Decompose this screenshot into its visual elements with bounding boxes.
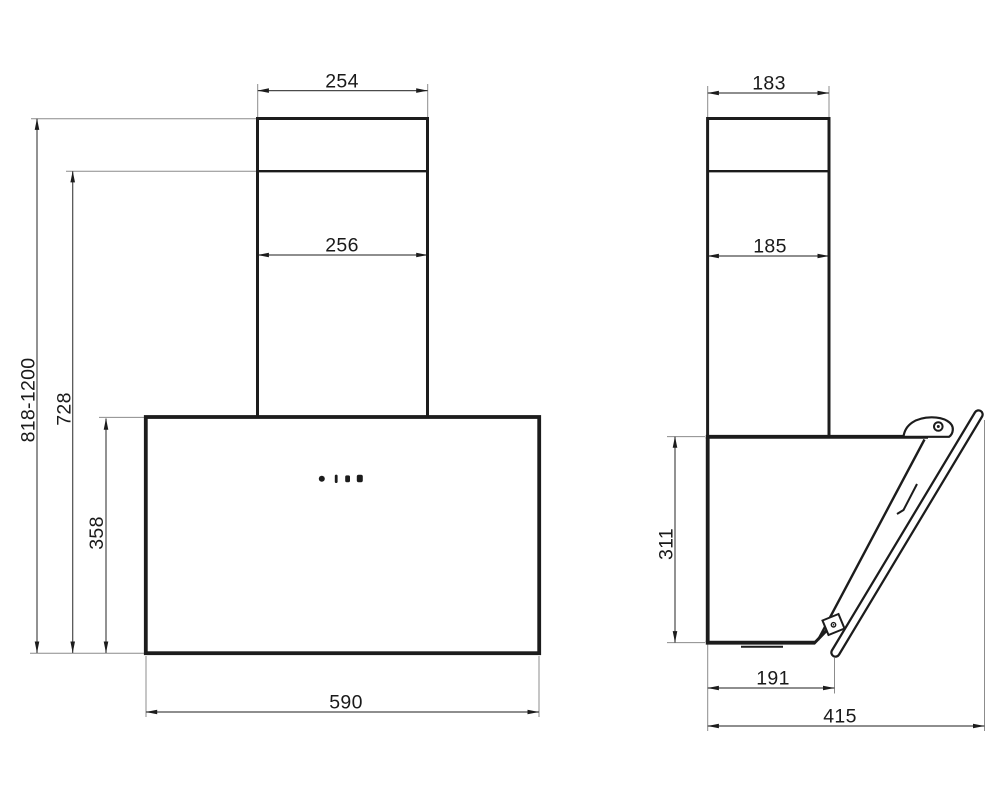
glass-panel-face <box>836 415 979 653</box>
dim-label-total-depth: 415 <box>823 706 856 728</box>
bracket-screw-center <box>833 624 835 626</box>
front-view: 254 256 818-1200 728 358 590 <box>18 71 540 718</box>
dim-label-body-height: 358 <box>86 516 108 549</box>
front-chimney <box>258 119 428 418</box>
dim-label-chimney-top-depth: 183 <box>752 73 785 95</box>
glass-panel <box>836 415 979 653</box>
control-dot <box>319 476 325 482</box>
dim-label-chimney-depth: 185 <box>753 236 786 258</box>
dim-label-body-bottom-depth: 191 <box>756 668 789 690</box>
dim-label-chimney-width: 256 <box>325 235 358 257</box>
hinge <box>904 417 953 437</box>
front-hood-outline <box>146 119 539 654</box>
side-hood-outline <box>706 119 979 653</box>
side-view: 183 185 311 191 415 <box>656 73 985 732</box>
control-dot <box>335 475 338 483</box>
hinge-pivot-center <box>937 425 940 428</box>
control-dot <box>357 475 363 482</box>
dim-label-side-body-height: 311 <box>656 528 678 560</box>
front-hood-body <box>146 417 539 653</box>
hinge-arm <box>904 417 953 437</box>
front-dimension-lines <box>37 91 539 712</box>
side-chimney <box>708 119 829 437</box>
front-dimension-labels: 254 256 818-1200 728 358 590 <box>18 71 363 714</box>
dim-label-body-width: 590 <box>329 692 362 714</box>
control-panel-dots <box>319 475 363 483</box>
dim-label-chimney-height: 728 <box>54 392 76 425</box>
dim-label-chimney-top-width: 254 <box>325 71 358 93</box>
technical-drawing-canvas: 254 256 818-1200 728 358 590 <box>0 0 1000 800</box>
dim-label-mounting-height-range: 818-1200 <box>18 358 40 443</box>
cooker-hood-dimension-drawing: 254 256 818-1200 728 358 590 <box>0 0 1000 800</box>
control-dot <box>345 475 350 482</box>
front-face-step-detail <box>897 484 917 514</box>
side-extension-lines <box>667 86 985 731</box>
